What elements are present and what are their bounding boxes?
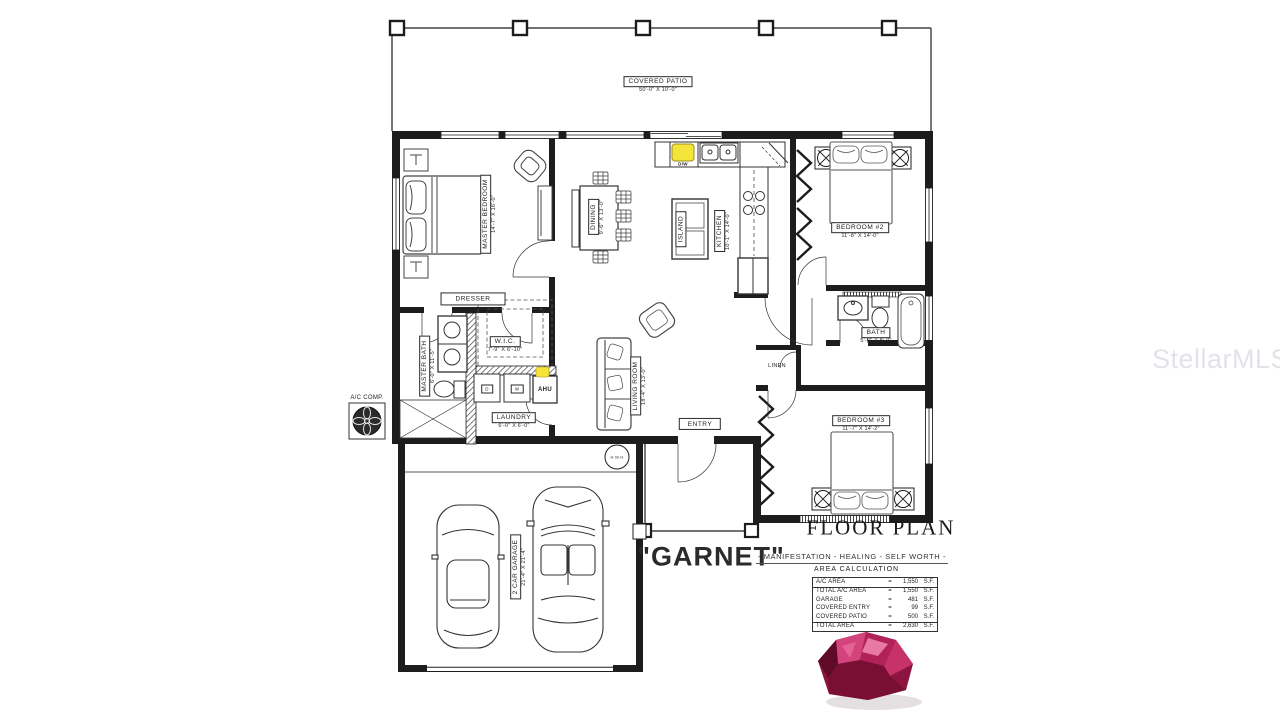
room-dims: 14'-7" X 16'-0" bbox=[492, 195, 498, 233]
row-label: GARAGE bbox=[816, 597, 884, 605]
row-eq: = bbox=[884, 597, 896, 605]
row-eq: = bbox=[884, 588, 896, 596]
room-dims: 6'-0" X 6'-0" bbox=[498, 424, 529, 430]
room-name: COVERED PATIO bbox=[624, 76, 693, 87]
table-row: GARAGE = 481 S.F. bbox=[813, 596, 937, 605]
row-label: TOTAL AREA bbox=[816, 623, 884, 631]
row-label: COVERED ENTRY bbox=[816, 605, 884, 613]
row-unit: S.F. bbox=[918, 614, 934, 622]
room-name: W.I.C. bbox=[490, 336, 521, 347]
row-eq: = bbox=[884, 614, 896, 622]
room-dims: 18'-4" X 13'-0" bbox=[642, 367, 648, 405]
room-dims: 6'-0" X 11'-5" bbox=[431, 349, 437, 383]
room-name: KITCHEN bbox=[714, 210, 725, 252]
label-dishwasher: D/W bbox=[678, 162, 688, 167]
label-master-bedroom: MASTER BEDROOM 14'-7" X 16'-0" bbox=[480, 174, 498, 253]
floor-plan-title: FLOOR PLAN bbox=[807, 516, 956, 541]
ac-compressor bbox=[349, 403, 385, 439]
row-value: 1,550 bbox=[896, 588, 918, 596]
row-value: 500 bbox=[896, 614, 918, 622]
room-dims: 9'-6" X 13'-0" bbox=[600, 200, 606, 235]
row-value: 481 bbox=[896, 597, 918, 605]
ahu-highlight bbox=[536, 367, 549, 377]
row-unit: S.F. bbox=[918, 597, 934, 605]
room-name: ENTRY bbox=[679, 418, 721, 430]
label-bedroom2: BEDROOM #2 11'-8" X 14'-0" bbox=[831, 222, 889, 240]
room-name: BEDROOM #2 bbox=[831, 222, 889, 233]
row-unit: S.F. bbox=[918, 579, 934, 587]
room-dims: 7'-9" X 6'-10" bbox=[488, 348, 523, 354]
covered-entry bbox=[638, 444, 758, 537]
row-unit: S.F. bbox=[918, 605, 934, 613]
row-label: TOTAL A/C AREA bbox=[816, 588, 884, 596]
label-dresser: DRESSER bbox=[441, 292, 506, 305]
bedroom3-furniture bbox=[812, 432, 914, 514]
room-name: MASTER BEDROOM bbox=[480, 174, 491, 253]
row-value: 1,550 bbox=[896, 579, 918, 587]
label-wic: W.I.C. 7'-9" X 6'-10" bbox=[488, 336, 523, 354]
table-row-total: TOTAL AREA = 2,630 S.F. bbox=[813, 622, 937, 632]
label-kitchen: KITCHEN 10'-1" X 14'-0" bbox=[714, 210, 732, 252]
row-label: COVERED PATIO bbox=[816, 614, 884, 622]
bedroom2-furniture bbox=[815, 142, 911, 224]
label-hwh: H.W.H bbox=[610, 455, 623, 460]
room-name: LIVING ROOM bbox=[630, 357, 641, 416]
stellar-mls-watermark: StellarMLS bbox=[1152, 344, 1280, 375]
room-name: LAUNDRY bbox=[492, 412, 536, 423]
car-right bbox=[527, 487, 609, 652]
label-washer: W bbox=[511, 385, 524, 394]
room-name: DINING bbox=[588, 199, 599, 235]
room-dims: 11'-7" X 14'-2" bbox=[842, 427, 879, 433]
shower bbox=[400, 400, 466, 438]
room-name: MASTER BATH bbox=[419, 335, 430, 396]
label-bedroom3: BEDROOM #3 11'-7" X 14'-2" bbox=[832, 415, 890, 433]
label-linen: LINEN bbox=[768, 363, 786, 369]
room-dims: 11'-8" X 14'-0" bbox=[841, 234, 878, 240]
master-bedroom-furniture bbox=[403, 147, 552, 278]
row-eq: = bbox=[884, 579, 896, 587]
room-dims: 5'-0" X 8'-0" bbox=[860, 339, 891, 345]
row-unit: S.F. bbox=[918, 588, 934, 596]
room-name: 2 CAR GARAGE bbox=[510, 535, 521, 600]
label-dining: DINING 9'-6" X 13'-0" bbox=[588, 199, 606, 235]
label-island: ISLAND bbox=[675, 211, 686, 247]
label-garage: 2 CAR GARAGE 21'-4" X 21'-4" bbox=[510, 535, 528, 600]
area-calculation-title: AREA CALCULATION bbox=[814, 566, 899, 573]
row-eq: = bbox=[884, 623, 896, 631]
label-ahu: AHU bbox=[538, 387, 552, 393]
garnet-gem-photo bbox=[818, 632, 922, 710]
label-laundry: LAUNDRY 6'-0" X 6'-0" bbox=[492, 412, 536, 430]
car-left bbox=[432, 505, 504, 648]
floor-plan-sheet: COVERED PATIO 50'-0" X 10'-0" MASTER BED… bbox=[0, 0, 1280, 720]
area-calculation-table: A/C AREA = 1,550 S.F. TOTAL A/C AREA = 1… bbox=[812, 577, 938, 632]
room-name: BEDROOM #3 bbox=[832, 415, 890, 426]
label-dryer: D bbox=[481, 385, 493, 394]
table-row: COVERED ENTRY = 99 S.F. bbox=[813, 605, 937, 614]
table-row: COVERED PATIO = 500 S.F. bbox=[813, 613, 937, 622]
label-bath: BATH 5'-0" X 8'-0" bbox=[860, 327, 891, 345]
room-name: BATH bbox=[862, 327, 891, 338]
room-name: ISLAND bbox=[675, 211, 686, 247]
dresser-box: DRESSER bbox=[441, 292, 506, 305]
row-value: 99 bbox=[896, 605, 918, 613]
row-eq: = bbox=[884, 605, 896, 613]
room-dims: 21'-4" X 21'-4" bbox=[522, 548, 528, 586]
dishwasher-highlight bbox=[672, 144, 694, 161]
room-dims: 50'-0" X 10'-0" bbox=[639, 88, 677, 94]
table-row: A/C AREA = 1,550 S.F. bbox=[813, 578, 937, 588]
row-label: A/C AREA bbox=[816, 579, 884, 587]
label-entry: ENTRY bbox=[679, 418, 721, 430]
label-ac-comp: A/C COMP. bbox=[350, 395, 383, 401]
row-unit: S.F. bbox=[918, 623, 934, 631]
label-living-room: LIVING ROOM 18'-4" X 13'-0" bbox=[630, 357, 648, 416]
label-covered-patio: COVERED PATIO 50'-0" X 10'-0" bbox=[624, 76, 693, 94]
row-value: 2,630 bbox=[896, 623, 918, 631]
plan-tagline: - MANIFESTATION - HEALING - SELF WORTH - bbox=[756, 552, 948, 564]
table-row: TOTAL A/C AREA = 1,550 S.F. bbox=[813, 588, 937, 597]
label-master-bath: MASTER BATH 6'-0" X 11'-5" bbox=[419, 335, 437, 396]
room-dims: 10'-1" X 14'-0" bbox=[726, 212, 732, 250]
